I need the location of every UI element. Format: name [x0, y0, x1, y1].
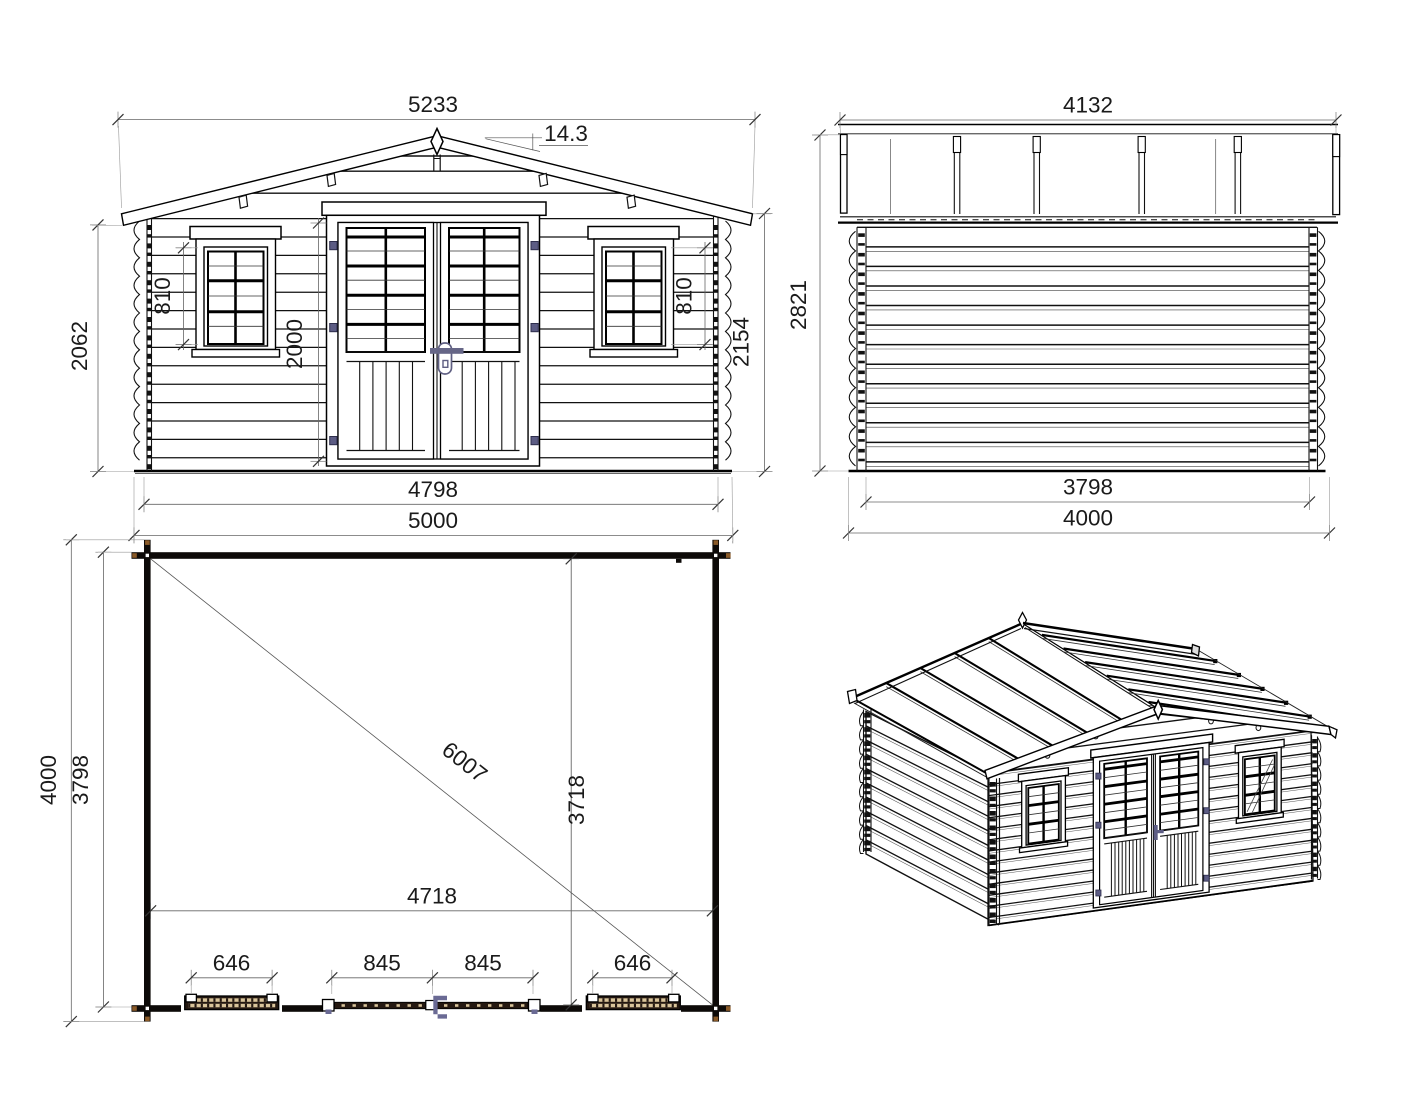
svg-text:810: 810 [150, 277, 175, 315]
svg-text:2154: 2154 [729, 317, 754, 367]
svg-text:4000: 4000 [36, 755, 61, 805]
svg-text:4000: 4000 [1063, 506, 1113, 531]
svg-text:3798: 3798 [68, 755, 93, 805]
svg-text:646: 646 [213, 951, 251, 976]
svg-text:4718: 4718 [407, 884, 457, 909]
svg-text:4132: 4132 [1063, 93, 1113, 118]
svg-text:3798: 3798 [1063, 475, 1113, 500]
svg-text:2062: 2062 [67, 321, 92, 371]
svg-text:5000: 5000 [408, 508, 458, 533]
svg-text:4798: 4798 [408, 477, 458, 502]
svg-text:2000: 2000 [282, 319, 307, 369]
svg-text:646: 646 [614, 951, 652, 976]
svg-text:2821: 2821 [786, 280, 811, 330]
svg-text:5233: 5233 [408, 92, 458, 117]
svg-text:845: 845 [363, 951, 401, 976]
svg-text:14.3: 14.3 [544, 121, 588, 146]
svg-text:810: 810 [672, 277, 697, 315]
svg-text:3718: 3718 [564, 775, 589, 825]
svg-text:845: 845 [464, 951, 502, 976]
